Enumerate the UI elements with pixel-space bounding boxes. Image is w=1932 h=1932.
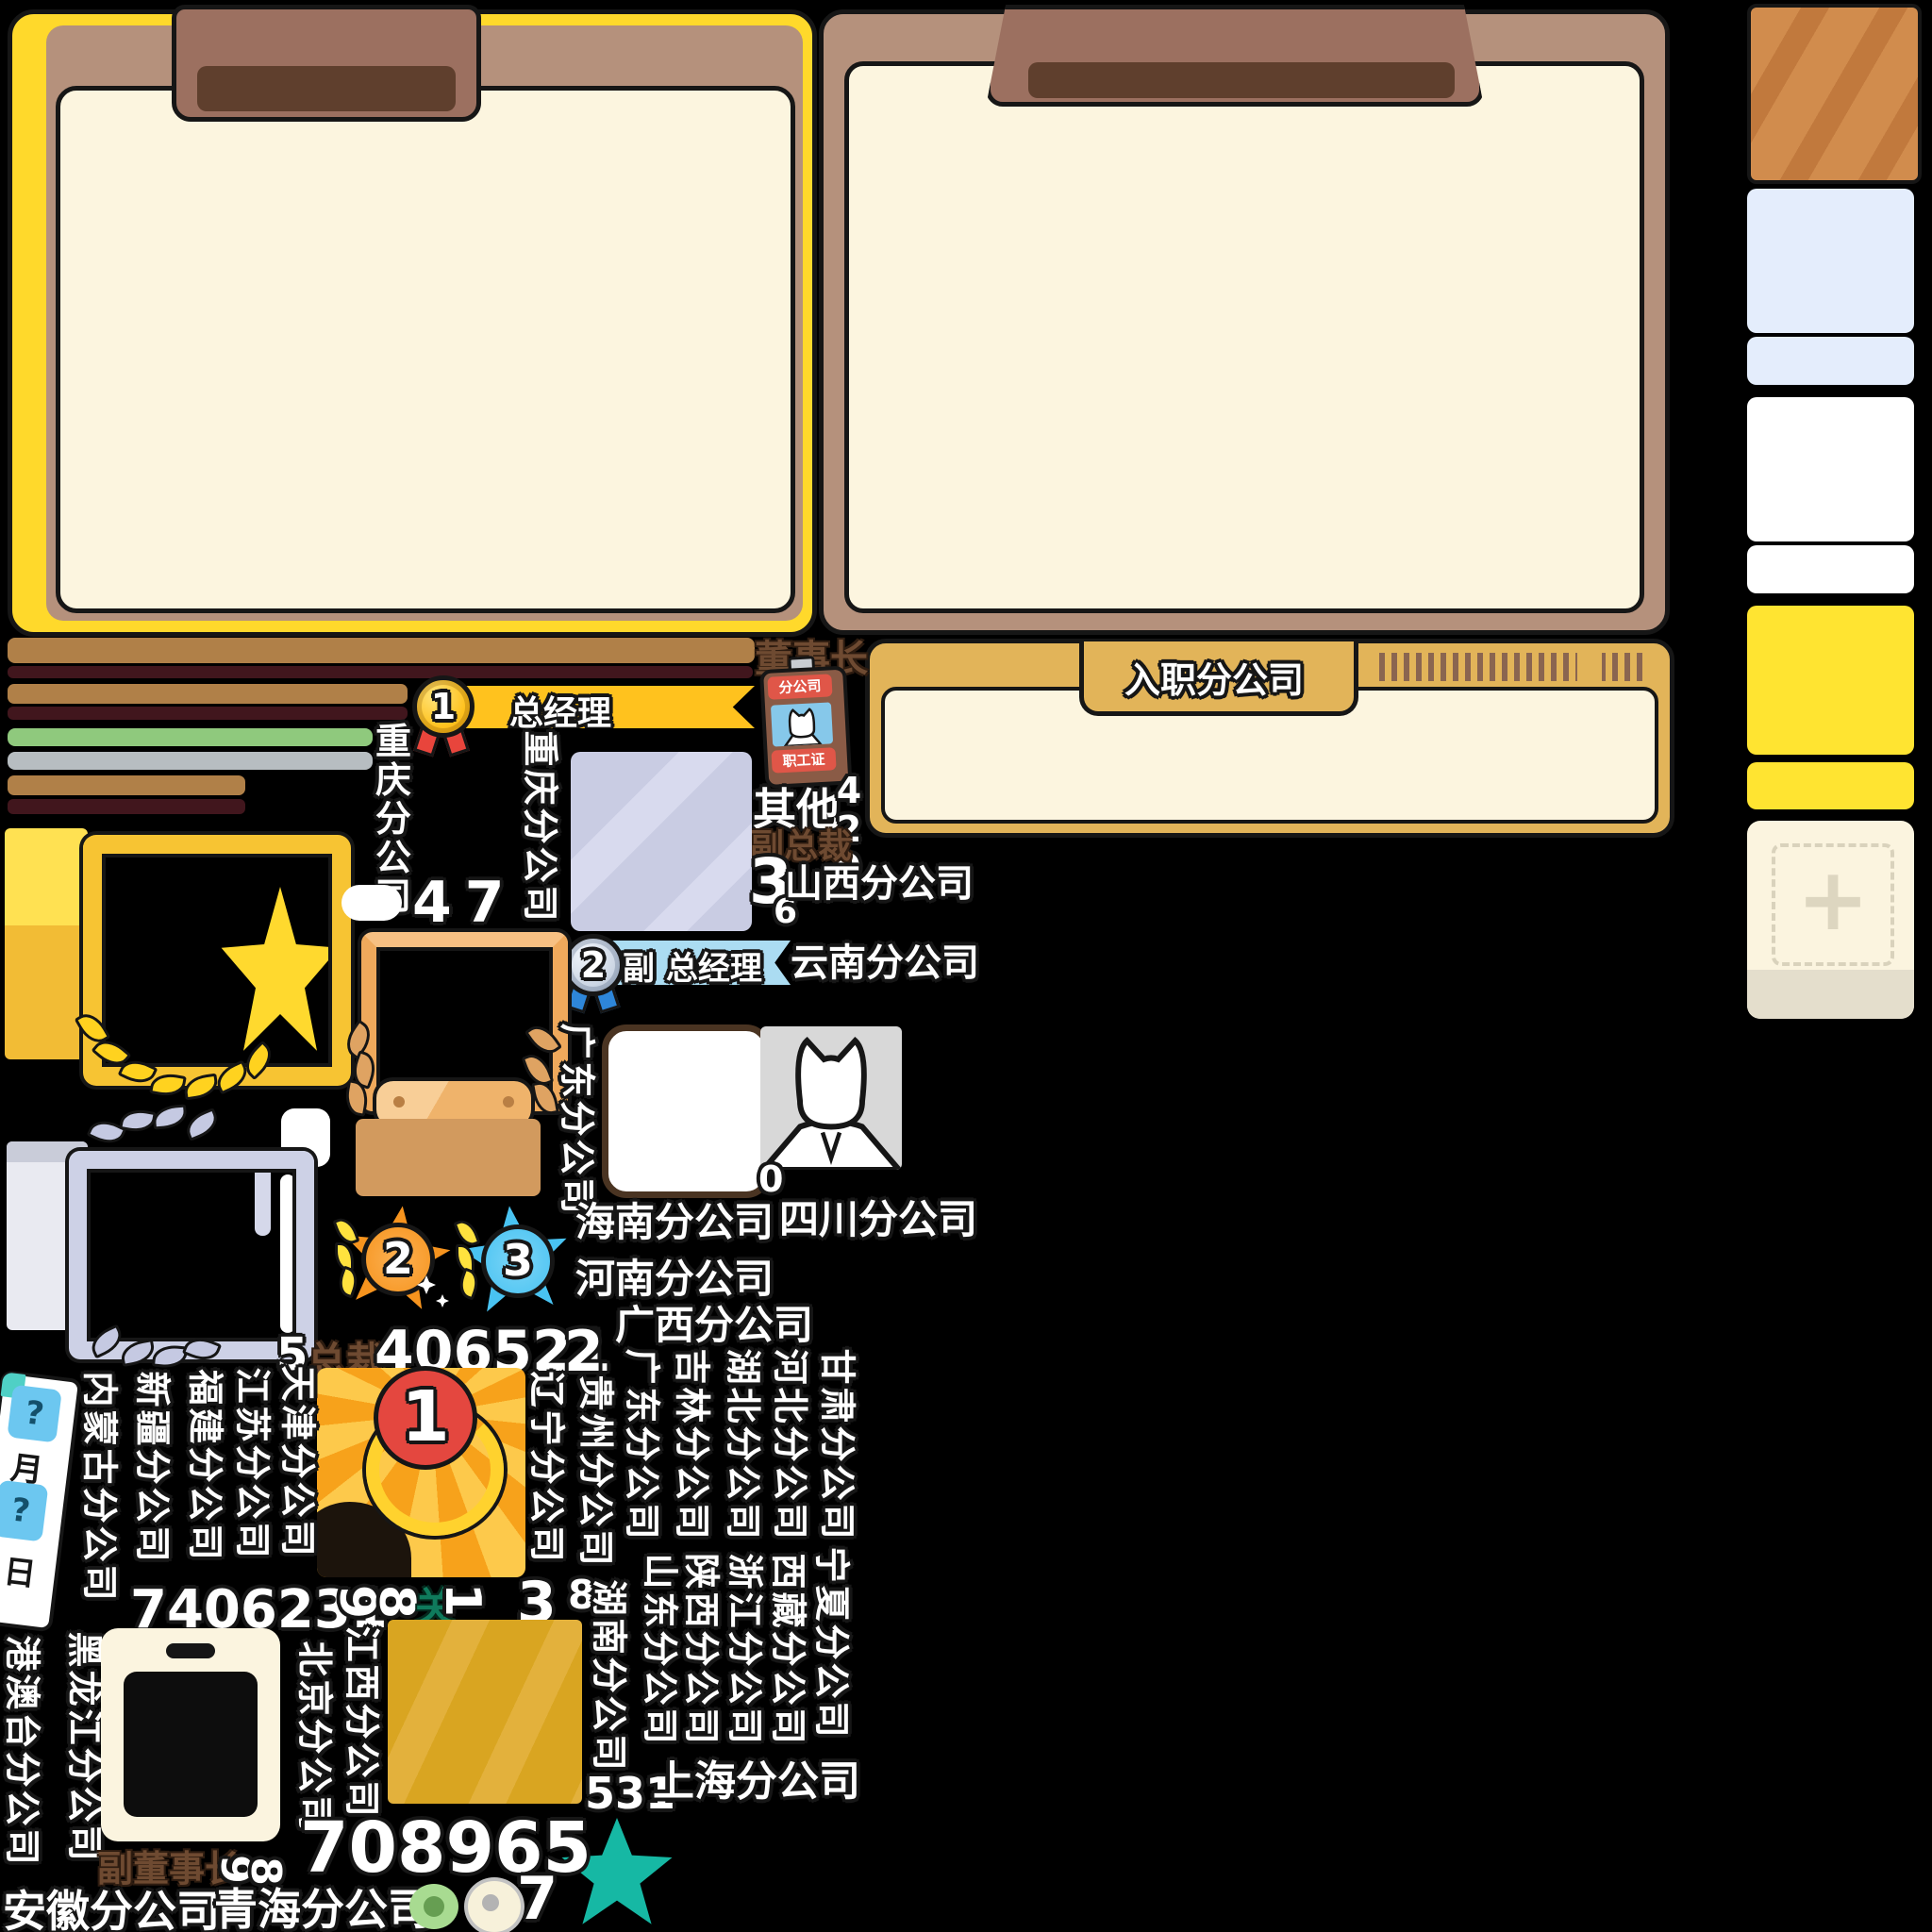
employee-badge-top-label: 分公司 bbox=[778, 677, 822, 696]
bar-maroon-3 bbox=[8, 799, 245, 814]
star-rank-2-number: 2 bbox=[383, 1233, 413, 1284]
company-col-xizang: 西藏分公司 bbox=[766, 1552, 809, 1745]
company-sichuan: 四川分公司 bbox=[779, 1188, 977, 1245]
company-col-guangdong-2: 广东分公司 bbox=[620, 1347, 663, 1541]
employee-badge-bottom-label: 职工证 bbox=[782, 751, 825, 770]
green-circle-center bbox=[424, 1896, 444, 1917]
medal-silver-2-number: 2 bbox=[581, 944, 606, 986]
panel-brown-tab bbox=[986, 5, 1484, 107]
company-col-hebei: 河北分公司 bbox=[768, 1347, 811, 1541]
silver-laurel-leaf bbox=[182, 1108, 222, 1141]
company-col-guangdong: 广东分公司 bbox=[557, 1022, 596, 1215]
id-card bbox=[101, 1628, 280, 1841]
panel-gold-tab-inner bbox=[197, 66, 456, 111]
company-col-zhejiang: 浙江分公司 bbox=[723, 1552, 766, 1745]
add-slot-dashed: + bbox=[1772, 843, 1894, 966]
company-col-ningxia: 宁夏分公司 bbox=[809, 1545, 853, 1739]
cat-photo-icon bbox=[771, 702, 833, 746]
company-hainan: 海南分公司 bbox=[575, 1191, 774, 1248]
blue-rect bbox=[1747, 189, 1914, 333]
date-day-char: 日 bbox=[1, 1545, 39, 1595]
bar-gray bbox=[8, 752, 373, 770]
date-day-box: ? bbox=[0, 1480, 48, 1542]
sign-nail-right bbox=[503, 1096, 514, 1108]
company-col-neimenggu: 内蒙古分公司 bbox=[77, 1370, 121, 1602]
date-day-unknown: ? bbox=[9, 1491, 32, 1530]
ribbon-deputy-gm-label: 副 总经理 bbox=[623, 942, 762, 989]
star3-laurel bbox=[455, 1267, 482, 1300]
company-col-xinjiang: 新疆分公司 bbox=[130, 1370, 174, 1563]
cat-avatar bbox=[760, 1026, 902, 1170]
white-rect-small bbox=[1747, 545, 1914, 593]
company-col-shaanxi: 陕西分公司 bbox=[679, 1552, 723, 1745]
company-col-heilongjiang: 黑龙江分公司 bbox=[62, 1630, 106, 1862]
company-guangxi: 广西分公司 bbox=[615, 1293, 813, 1351]
panel-brown-body bbox=[844, 61, 1644, 613]
yellow-rect bbox=[1747, 606, 1914, 755]
star2-sparkle bbox=[436, 1294, 449, 1307]
bar-maroon-2 bbox=[8, 707, 408, 720]
medal-silver-2: 2 bbox=[562, 934, 625, 996]
sprite-atlas: 入职分公司 + 董事长 总经理 1 重庆分公司 分公司 bbox=[0, 0, 1932, 1932]
sign-nail-left bbox=[393, 1096, 405, 1108]
company-col-hubei: 湖北分公司 bbox=[721, 1347, 764, 1541]
company-col-beijing: 北京分公司 bbox=[292, 1640, 336, 1833]
barcode bbox=[1379, 653, 1649, 681]
barcode-gap bbox=[1577, 653, 1602, 681]
number-7-bottom: 7 bbox=[517, 1864, 558, 1932]
employee-badge-photo bbox=[771, 702, 833, 746]
bar-green bbox=[8, 728, 373, 746]
gold-square bbox=[388, 1620, 582, 1804]
gold-frame-bar bbox=[5, 828, 88, 1059]
number-47: 47 bbox=[412, 870, 518, 936]
ribbon-general-manager-label: 总经理 bbox=[509, 686, 611, 735]
bar-tan-1 bbox=[8, 638, 755, 663]
ribbon-general-manager: 总经理 bbox=[441, 686, 755, 728]
company-col-jiangxi: 江西分公司 bbox=[340, 1624, 383, 1818]
medal-gold-1: 1 bbox=[412, 675, 475, 738]
medal-gold-1-number: 1 bbox=[431, 686, 456, 727]
add-slot-card: + bbox=[1747, 821, 1914, 1019]
company-col-jilin: 吉林分公司 bbox=[670, 1347, 713, 1541]
white-pill bbox=[341, 885, 402, 921]
panel-gold-tab bbox=[172, 5, 481, 122]
photo-frame bbox=[602, 1024, 771, 1198]
badge-rank-1-number: 1 bbox=[401, 1376, 450, 1457]
bar-maroon-1 bbox=[8, 666, 753, 678]
plus-icon: + bbox=[1796, 849, 1869, 950]
employ-panel-title: 入职分公司 bbox=[1087, 651, 1341, 703]
id-card-photo bbox=[124, 1672, 258, 1817]
bar-tan-2 bbox=[8, 684, 408, 704]
blue-rect-small bbox=[1747, 337, 1914, 385]
panel-gold-body bbox=[56, 86, 795, 613]
number-1-rot: 1 bbox=[434, 1583, 491, 1617]
company-anhui: 安徽分公司 bbox=[3, 1877, 220, 1932]
wood-tile bbox=[1747, 4, 1922, 184]
company-col-shandong: 山东分公司 bbox=[638, 1552, 681, 1745]
date-widget: ? 月 ? 日 bbox=[0, 1370, 82, 1632]
sign-base bbox=[356, 1119, 541, 1196]
company-col-liaoning: 辽宁分公司 bbox=[525, 1370, 568, 1563]
employee-badge-bottom-band: 职工证 bbox=[771, 747, 836, 774]
employee-badge: 分公司 职工证 bbox=[759, 666, 844, 781]
company-shanxi: 山西分公司 bbox=[785, 853, 974, 908]
company-col-jiangsu: 江苏分公司 bbox=[230, 1366, 274, 1559]
company-col-guizhou: 贵州分公司 bbox=[574, 1374, 617, 1567]
panel-brown-tab-inner bbox=[1028, 62, 1455, 98]
cream-circle bbox=[464, 1877, 525, 1932]
cream-circle-center bbox=[482, 1894, 499, 1911]
date-month-box: ? bbox=[7, 1385, 61, 1443]
yellow-rect-small bbox=[1747, 762, 1914, 809]
employee-badge-top-band: 分公司 bbox=[767, 674, 832, 700]
star-rank-3-circle: 3 bbox=[481, 1224, 555, 1298]
company-col-gansu: 甘肃分公司 bbox=[815, 1347, 858, 1541]
company-col-fujian: 福建分公司 bbox=[183, 1368, 226, 1561]
star-rank-3-number: 3 bbox=[503, 1235, 533, 1286]
company-col-gangaotai: 港澳台分公司 bbox=[0, 1634, 43, 1866]
company-yunnan: 云南分公司 bbox=[791, 932, 979, 987]
bar-tan-3 bbox=[8, 775, 245, 795]
company-col-tianjin: 天津分公司 bbox=[275, 1364, 319, 1557]
badge-rank-1-circle: 1 bbox=[374, 1366, 477, 1470]
company-qinghai: 青海分公司 bbox=[214, 1875, 431, 1932]
cat-avatar-icon bbox=[760, 1026, 902, 1170]
employ-panel: 入职分公司 bbox=[865, 639, 1674, 838]
lavender-tile bbox=[571, 752, 752, 931]
star2-laurel bbox=[334, 1265, 361, 1298]
silver-laurel-leaf bbox=[152, 1104, 188, 1129]
white-rect bbox=[1747, 397, 1914, 541]
add-slot-footer bbox=[1747, 970, 1914, 1019]
company-shanghai: 上海分公司 bbox=[653, 1747, 860, 1807]
date-month-unknown: ? bbox=[23, 1394, 45, 1434]
green-circle bbox=[409, 1884, 458, 1929]
company-col-chongqing-rotated: 重庆分公司 bbox=[519, 729, 560, 923]
company-col-hunan: 湖南分公司 bbox=[587, 1578, 630, 1772]
id-card-slot bbox=[166, 1643, 215, 1658]
